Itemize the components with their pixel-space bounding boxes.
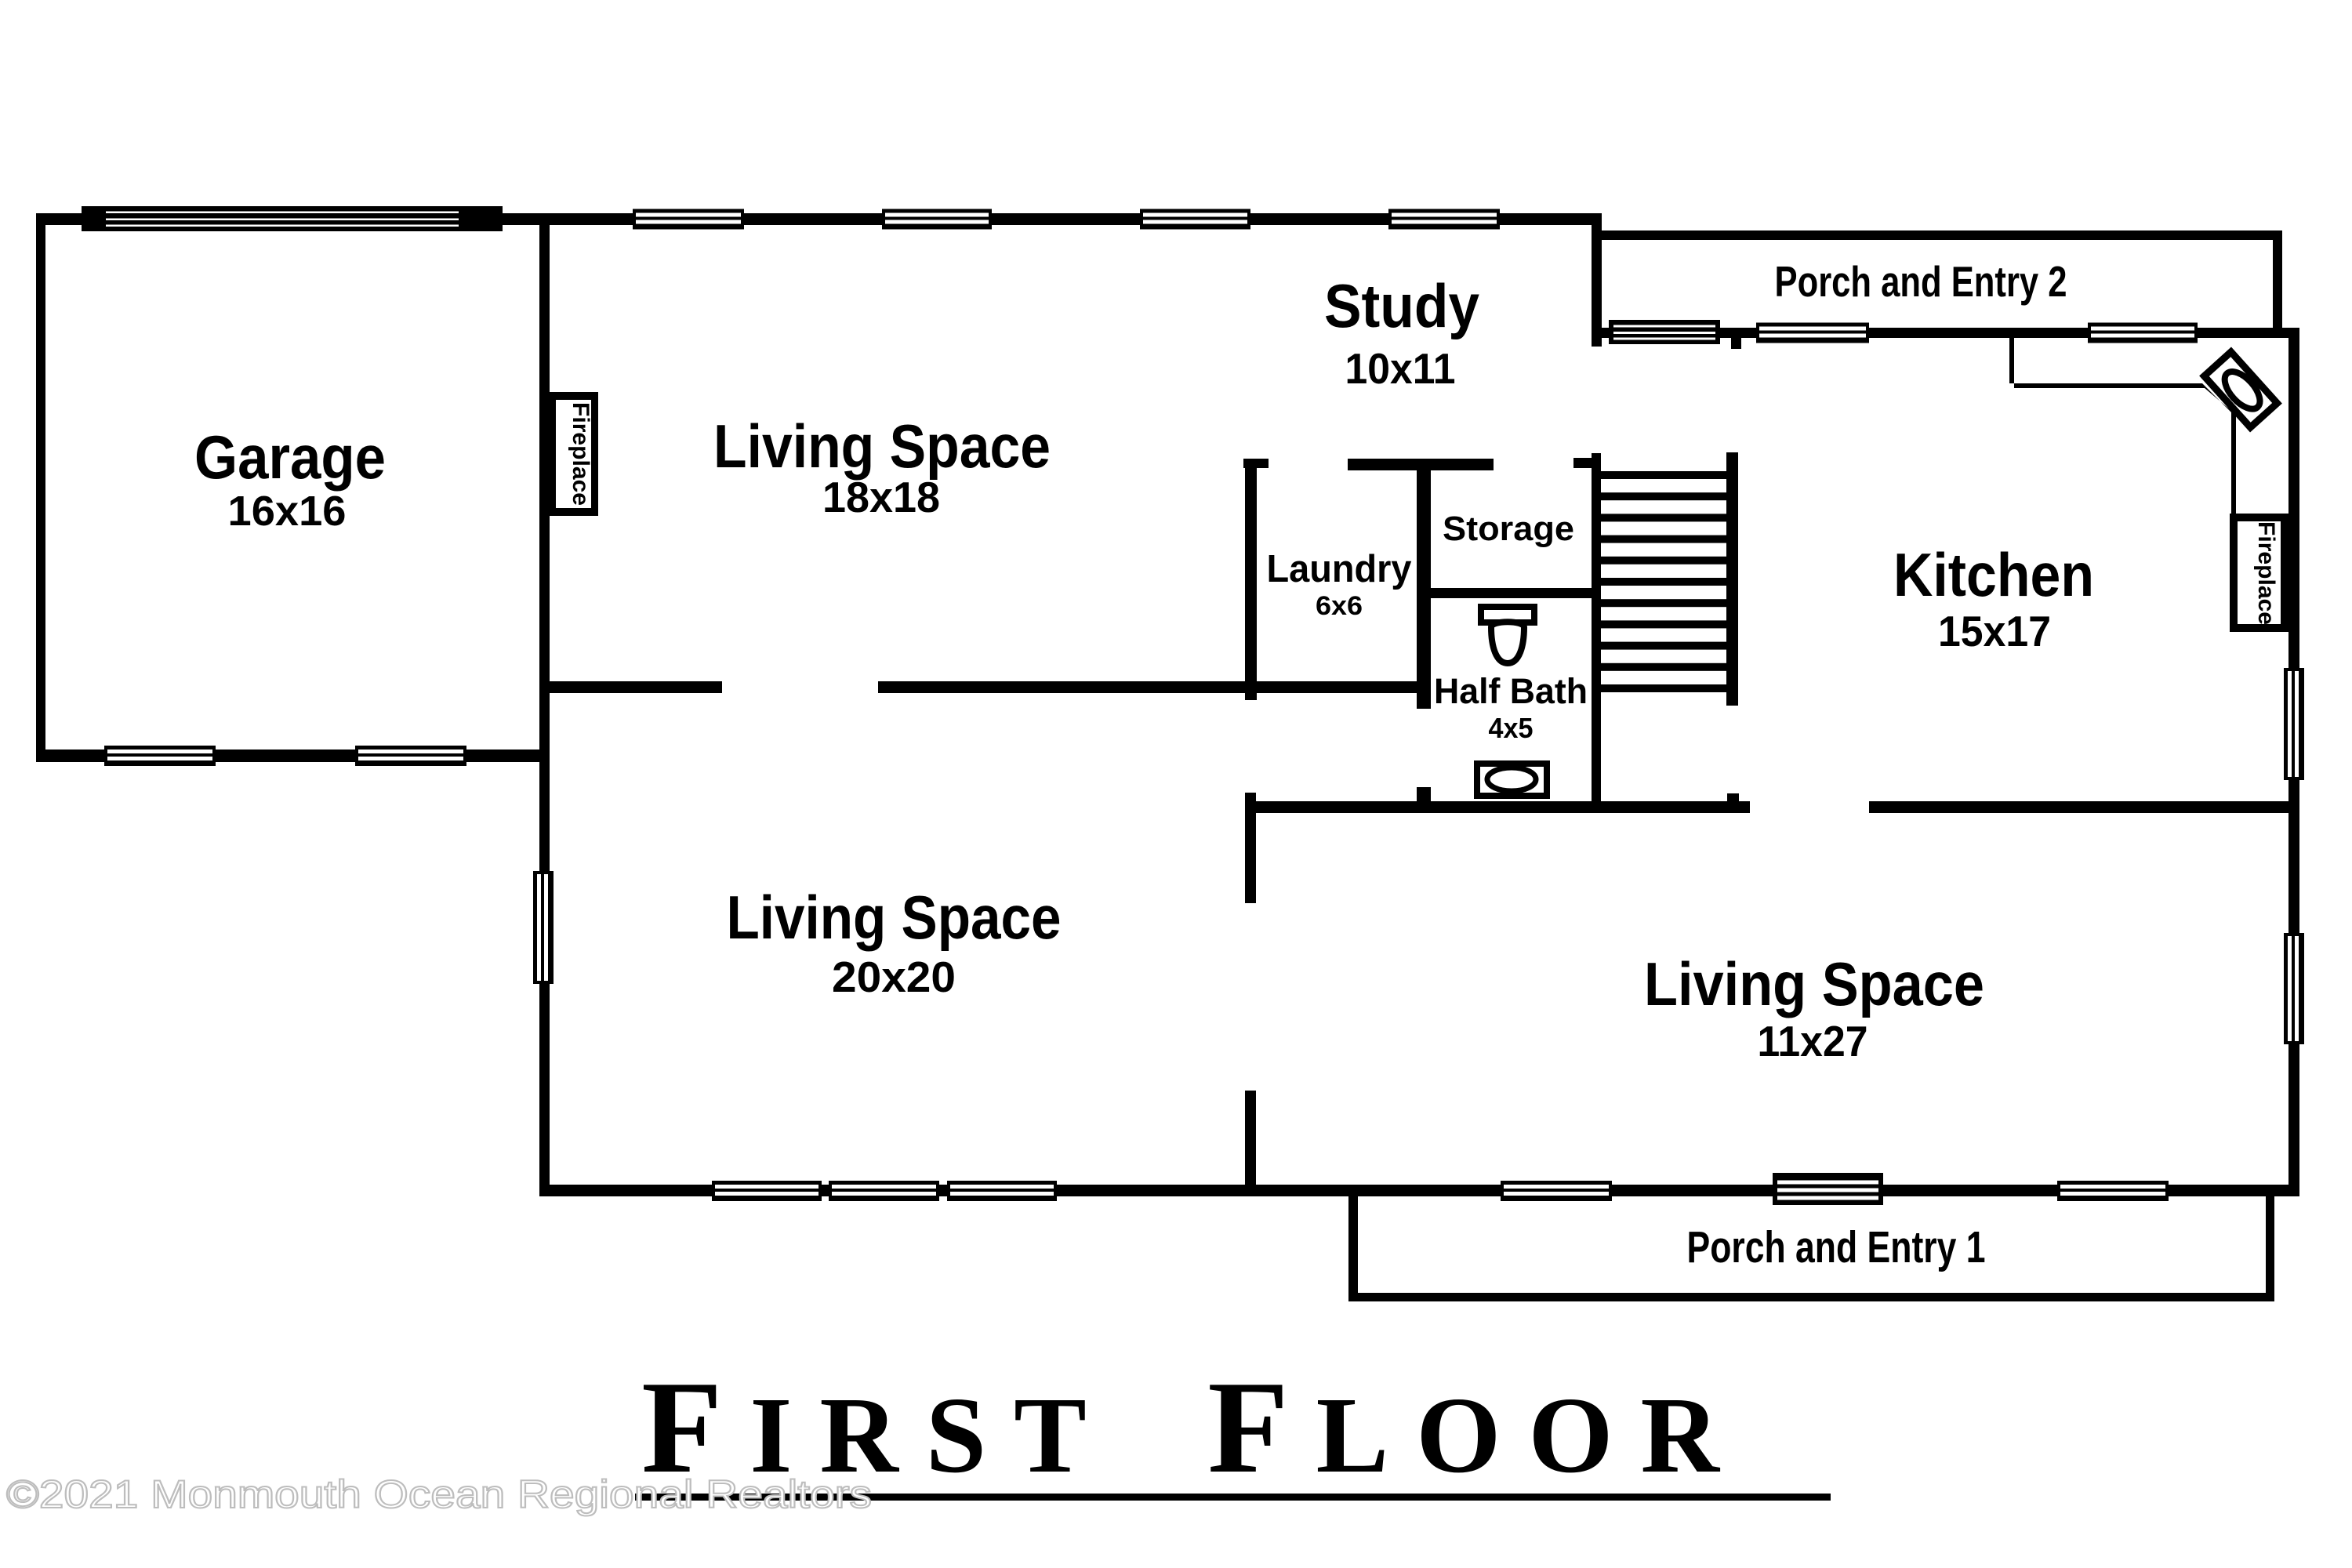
svg-text:Fireplace: Fireplace — [2253, 521, 2279, 625]
svg-text:Laundry: Laundry — [1267, 548, 1412, 590]
svg-text:11x27: 11x27 — [1758, 1017, 1868, 1065]
svg-text:20x20: 20x20 — [832, 953, 956, 1001]
svg-text:18x18: 18x18 — [822, 473, 940, 521]
svg-text:16x16: 16x16 — [228, 488, 347, 535]
svg-text:10x11: 10x11 — [1345, 344, 1456, 393]
svg-text:Living Space: Living Space — [1644, 949, 1984, 1018]
svg-text:Living Space: Living Space — [713, 412, 1051, 481]
svg-text:Porch and Entry 1: Porch and Entry 1 — [1687, 1222, 1986, 1272]
svg-text:6x6: 6x6 — [1316, 591, 1363, 621]
svg-text:Living Space: Living Space — [727, 883, 1062, 952]
svg-text:Study: Study — [1324, 271, 1479, 340]
svg-text:©2021 Monmouth Ocean Regional: ©2021 Monmouth Ocean Regional Realtors — [6, 1472, 872, 1516]
svg-text:Half Bath: Half Bath — [1434, 671, 1588, 711]
svg-text:Fireplace: Fireplace — [568, 402, 593, 506]
svg-text:15x17: 15x17 — [1938, 607, 2051, 655]
svg-text:Kitchen: Kitchen — [1893, 540, 2094, 609]
svg-text:Storage: Storage — [1443, 510, 1574, 548]
svg-text:Garage: Garage — [194, 423, 386, 492]
svg-text:4x5: 4x5 — [1489, 712, 1534, 744]
svg-text:Porch and Entry 2: Porch and Entry 2 — [1775, 257, 2067, 306]
